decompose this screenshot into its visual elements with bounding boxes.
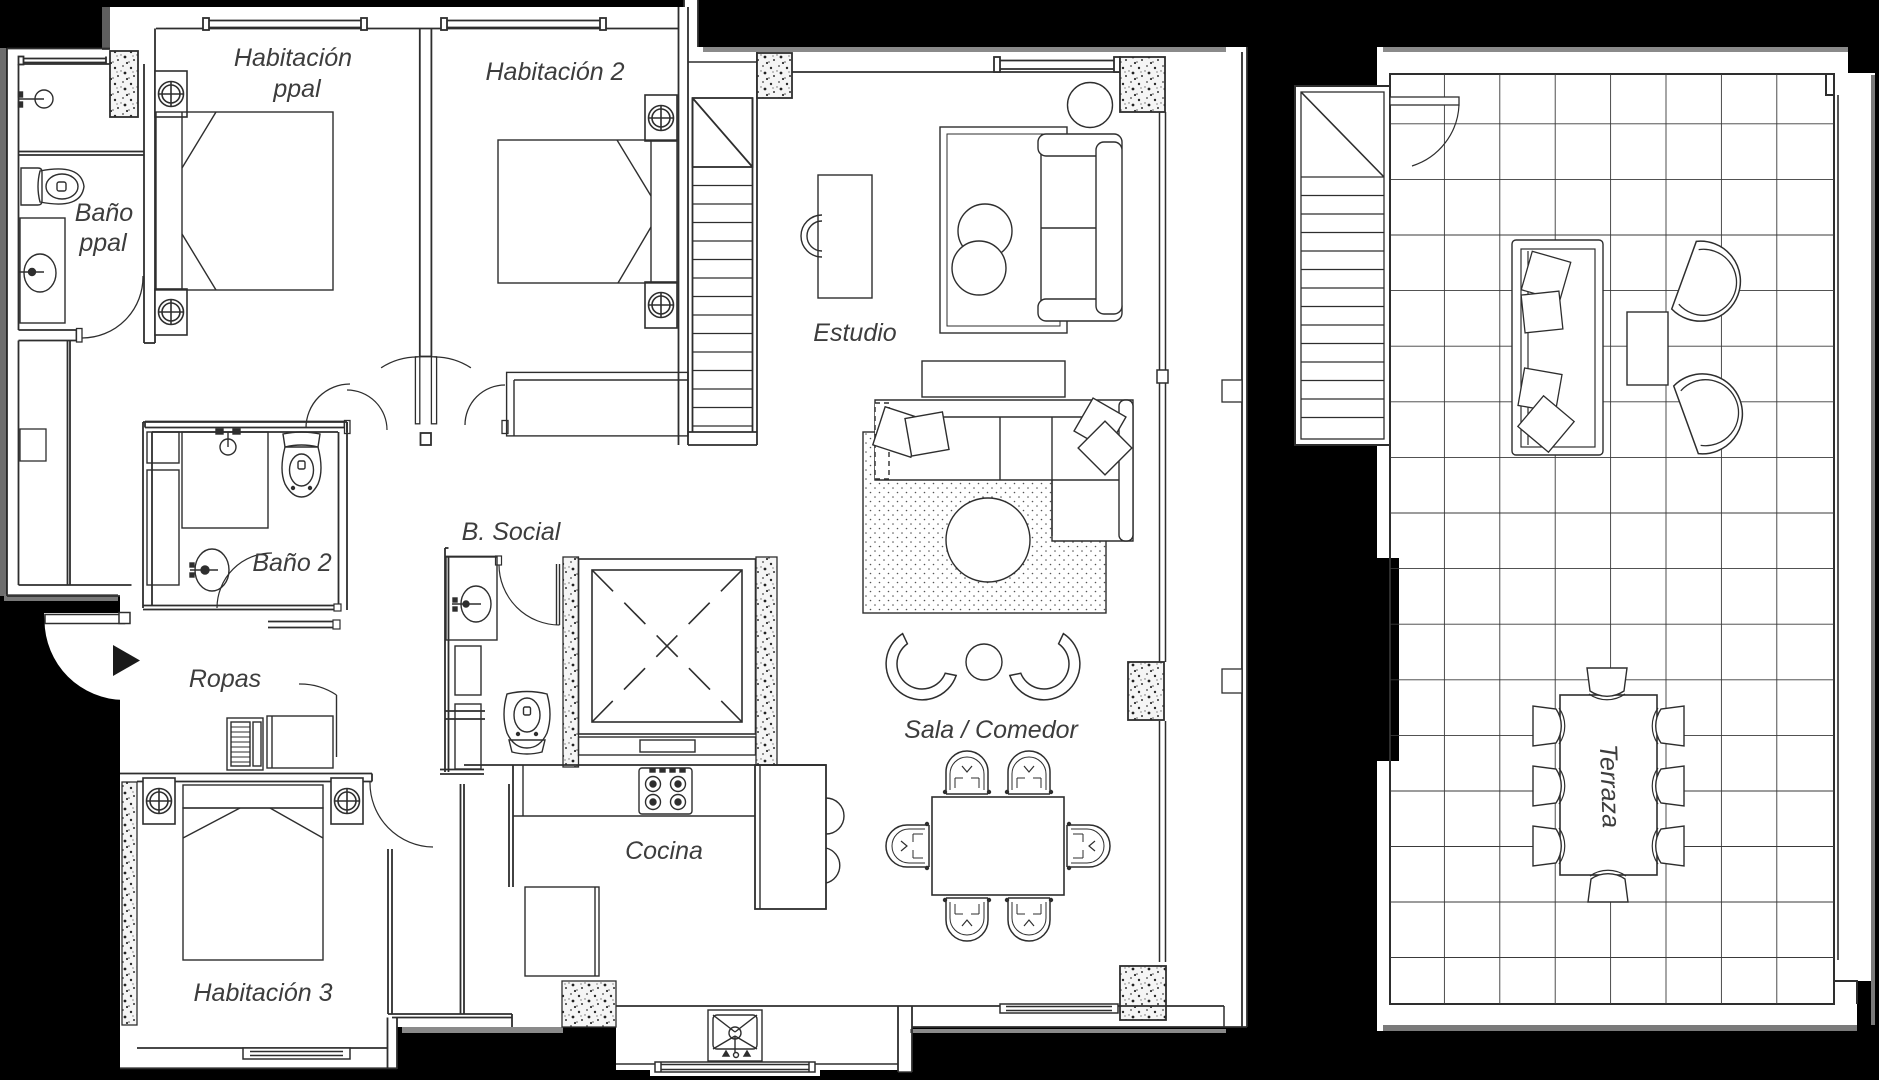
svg-text:Habitación 3: Habitación 3 bbox=[194, 979, 333, 1007]
svg-text:Habitación 2: Habitación 2 bbox=[486, 58, 625, 86]
svg-text:ppal: ppal bbox=[272, 75, 322, 103]
svg-text:Baño: Baño bbox=[75, 199, 133, 227]
svg-text:Sala / Comedor: Sala / Comedor bbox=[904, 716, 1079, 744]
svg-text:Habitación: Habitación bbox=[234, 44, 352, 72]
svg-text:Cocina: Cocina bbox=[625, 837, 703, 865]
svg-text:B. Social: B. Social bbox=[462, 518, 562, 546]
svg-text:Estudio: Estudio bbox=[813, 319, 896, 347]
svg-text:Baño 2: Baño 2 bbox=[252, 549, 331, 577]
svg-text:ppal: ppal bbox=[78, 229, 128, 257]
svg-text:Ropas: Ropas bbox=[189, 665, 261, 693]
svg-text:Terraza: Terraza bbox=[1594, 744, 1625, 829]
